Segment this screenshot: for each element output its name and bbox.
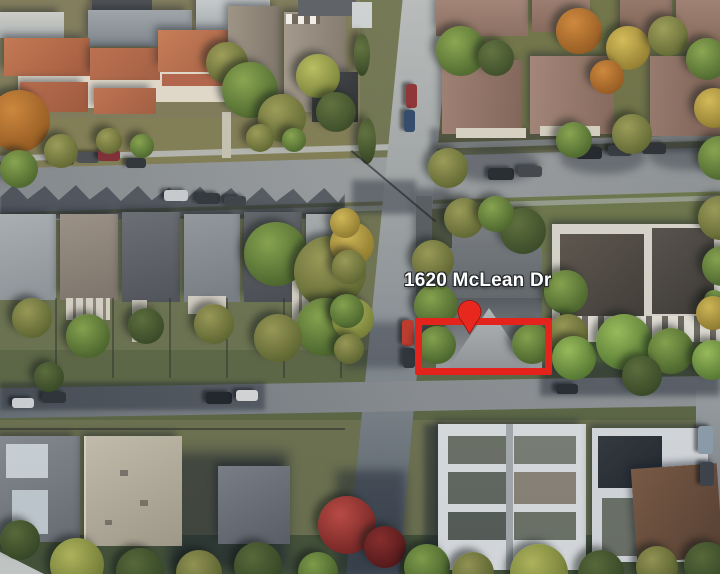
car	[206, 392, 232, 404]
location-pin-icon	[456, 299, 483, 336]
tree	[334, 334, 364, 364]
roof-patio	[514, 512, 576, 540]
tree	[478, 40, 514, 76]
car	[488, 168, 514, 180]
car	[698, 426, 713, 454]
roof-patio	[448, 472, 506, 504]
tree	[622, 356, 662, 396]
car	[404, 110, 415, 132]
tree	[0, 150, 38, 188]
house-roof	[184, 214, 240, 302]
roof-patio	[448, 436, 506, 464]
house-roof	[90, 48, 160, 80]
roof-gap	[506, 424, 513, 570]
walkway	[222, 112, 231, 158]
house-roof	[0, 12, 64, 38]
car	[403, 348, 415, 368]
roof-patio	[514, 436, 576, 464]
house-roof	[60, 214, 118, 300]
tree	[478, 196, 514, 232]
house-roof	[0, 214, 56, 300]
tree	[556, 122, 592, 158]
apartment-roof	[84, 436, 182, 546]
car	[700, 462, 714, 486]
tree	[254, 314, 302, 362]
tree	[194, 304, 234, 344]
tree	[330, 208, 360, 238]
shed-roof	[352, 2, 372, 28]
roof-patio	[514, 472, 576, 504]
bush	[96, 128, 122, 154]
tree	[590, 60, 624, 94]
tree	[552, 336, 596, 380]
facade	[456, 128, 526, 138]
house-roof	[218, 466, 290, 544]
red-tree	[364, 526, 406, 568]
tree	[66, 314, 110, 358]
bush	[282, 128, 306, 152]
address-label: 1620 McLean Dr	[404, 270, 551, 292]
car	[164, 190, 188, 201]
car	[236, 390, 258, 401]
car	[196, 193, 220, 204]
house-roof	[298, 0, 356, 16]
pin-shape	[458, 301, 481, 335]
tree	[428, 148, 468, 188]
tree	[12, 298, 52, 338]
tree	[556, 8, 602, 54]
car	[42, 392, 66, 403]
tree	[128, 308, 164, 344]
tree	[44, 134, 78, 168]
car	[406, 84, 417, 108]
house-roof	[122, 212, 180, 302]
tree	[648, 16, 688, 56]
roof-vent	[120, 470, 128, 476]
aerial-map[interactable]: 1620 McLean Dr	[0, 0, 720, 574]
tree	[612, 114, 652, 154]
tree	[34, 362, 64, 392]
car	[556, 384, 578, 394]
car	[126, 158, 146, 168]
roof-vent	[105, 520, 112, 525]
tree	[332, 250, 366, 284]
house-roof	[4, 38, 90, 76]
tree	[330, 294, 364, 328]
car	[77, 152, 99, 163]
bush	[130, 134, 154, 158]
fence-line	[0, 428, 345, 430]
house-roof	[94, 88, 156, 114]
roof-vent	[140, 500, 148, 506]
tree	[0, 520, 40, 560]
roof-detail	[6, 444, 48, 478]
tree	[316, 92, 356, 132]
cedar-tree	[354, 34, 370, 76]
bush	[246, 124, 274, 152]
car	[402, 320, 414, 346]
car	[518, 166, 542, 177]
roof-patio	[448, 512, 506, 540]
property-highlight-box	[415, 318, 552, 375]
car	[224, 196, 246, 206]
tree	[686, 38, 720, 80]
car	[12, 398, 34, 408]
